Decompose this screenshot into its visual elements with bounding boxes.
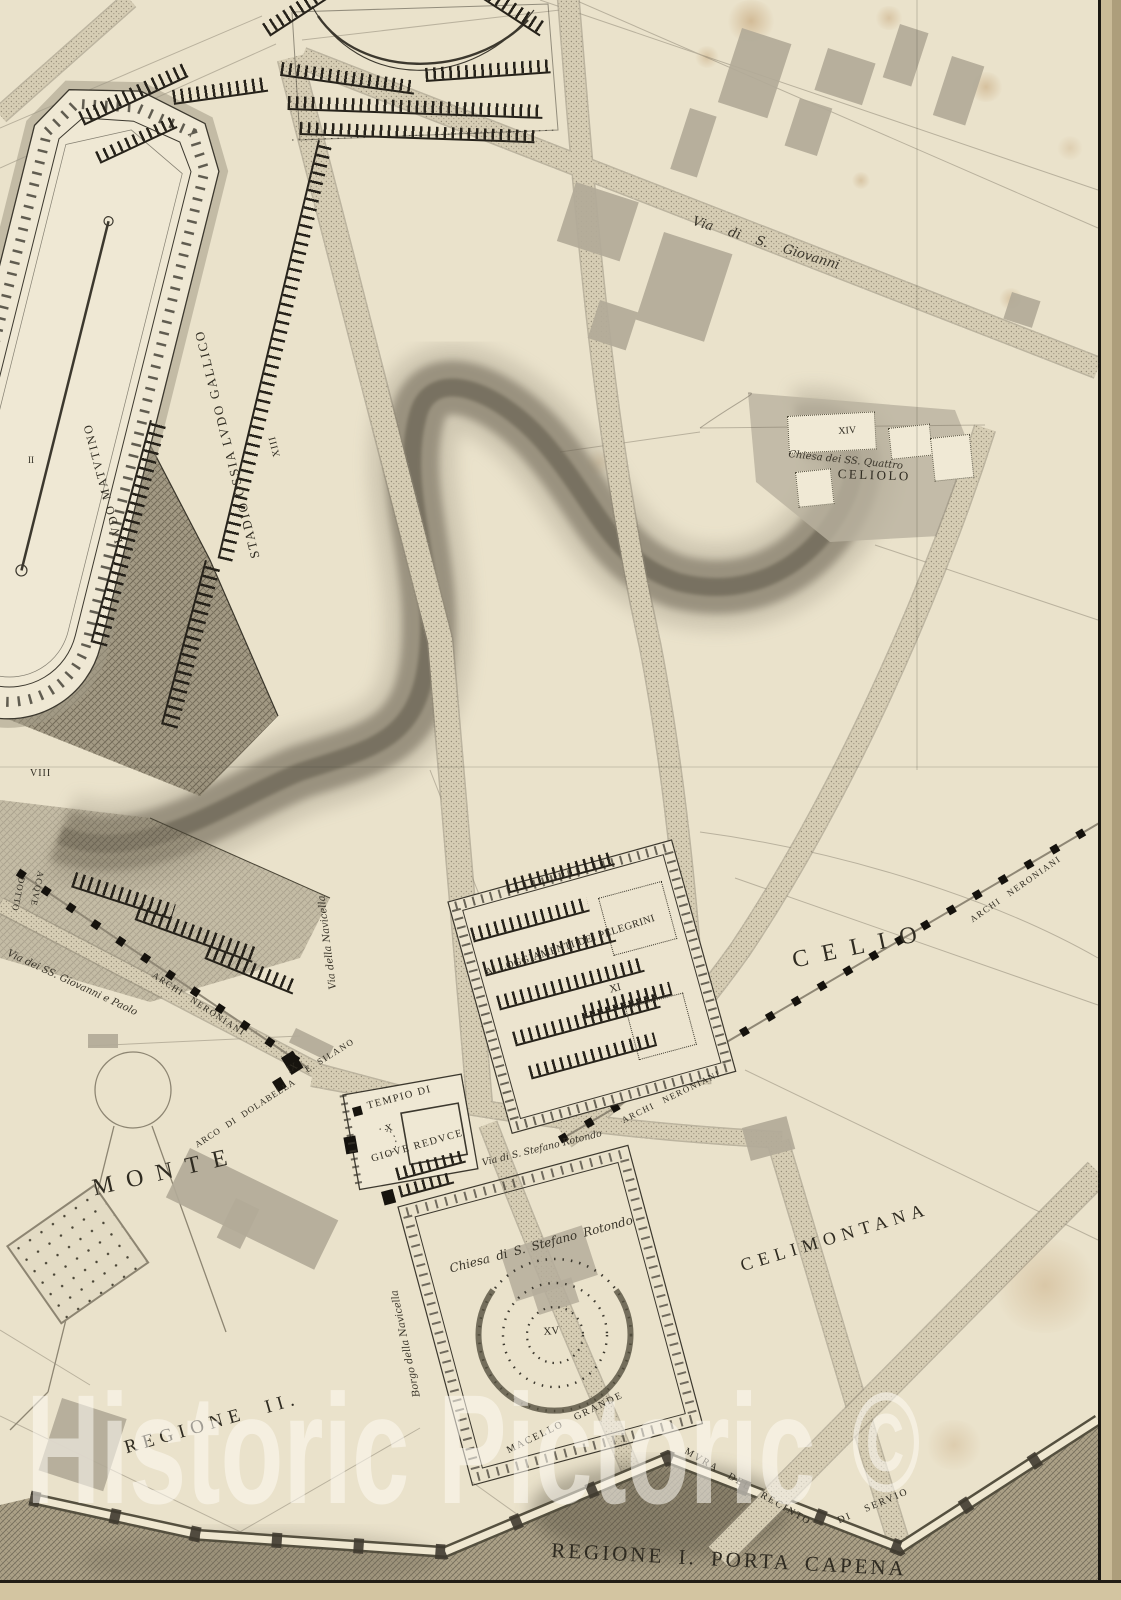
fold-crease-vertical (916, 0, 918, 770)
building-plan (795, 468, 835, 508)
label-celiolo: CELIOLO (837, 466, 911, 485)
sheet-edge-bottom (0, 1580, 1121, 1600)
building-block (88, 1034, 118, 1048)
building-plan (888, 424, 933, 460)
label-numeral-viii: VIII (30, 768, 51, 779)
label-numeral-xiv: XIV (838, 425, 857, 437)
label-numeral-ii: II (28, 455, 34, 465)
label-numeral-xv: XV (543, 1325, 560, 1338)
building-plan (930, 434, 974, 482)
church-plan-ss-quattro (787, 411, 877, 454)
sheet-edge-right (1098, 0, 1121, 1600)
map-sheet: STADIO OSSIA LVDO GALLICO XIII LVDO MATV… (0, 0, 1121, 1600)
fold-crease-horizontal (0, 766, 1121, 768)
